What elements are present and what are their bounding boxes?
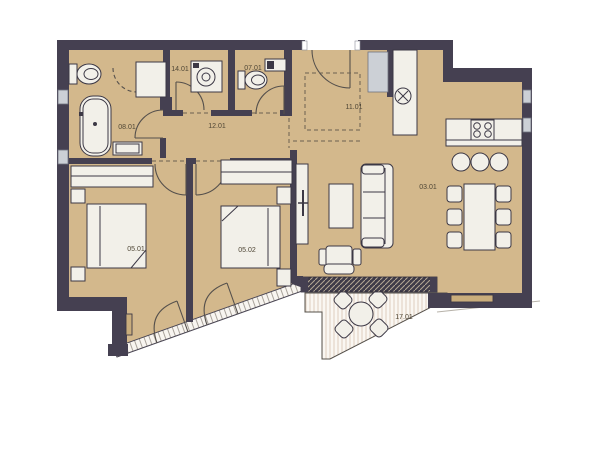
door-frame	[355, 41, 360, 50]
room-label-wc: 07.01	[244, 65, 262, 72]
toilet-icon	[77, 64, 101, 84]
wall	[443, 68, 532, 82]
chair-icon	[496, 186, 511, 202]
bathtub-tap-icon	[79, 112, 83, 116]
dining-furniture	[447, 184, 511, 250]
room-label-hallway: 12.01	[208, 123, 226, 130]
bar-stool-icon	[490, 153, 508, 171]
sink-tap-icon	[267, 61, 274, 69]
chair-icon	[447, 232, 462, 248]
bed-icon	[221, 206, 280, 268]
wall	[358, 40, 453, 50]
wall	[522, 68, 532, 308]
toilet-icon	[245, 71, 267, 89]
terrace-door-sill	[301, 277, 437, 292]
terrace-table-icon	[349, 302, 373, 326]
bar-stool-icon	[452, 153, 470, 171]
wall	[67, 158, 152, 164]
closet-icon	[393, 50, 417, 135]
room-label-bedroom1: 05.01	[127, 246, 145, 253]
entry-sidelight-window	[368, 52, 388, 92]
coffee-table-icon	[329, 184, 353, 228]
wall	[57, 40, 305, 50]
chair-icon	[496, 232, 511, 248]
window	[523, 118, 531, 132]
sofa-armrest-icon	[362, 238, 384, 247]
room-label-living: 03.01	[419, 184, 437, 191]
floor-plan-drawing: 08.01 14.01 07.01 12.01 11.01 03.01 05.0…	[0, 0, 600, 469]
wall	[228, 50, 235, 116]
floor-plan: 08.01 14.01 07.01 12.01 11.01 03.01 05.0…	[0, 0, 600, 469]
room-label-entry: 11.01	[346, 104, 363, 111]
sofa-armrest-icon	[362, 165, 384, 174]
nightstand-icon	[277, 187, 291, 204]
nightstand-icon	[277, 269, 291, 286]
chair-icon	[447, 209, 462, 225]
sill-cap	[430, 277, 437, 292]
bed-icon	[87, 204, 146, 268]
armchair-icon	[353, 249, 361, 265]
bar-stool-icon	[471, 153, 489, 171]
wall	[163, 110, 183, 116]
radiator-icon	[126, 314, 132, 335]
window	[58, 90, 68, 104]
wall	[211, 110, 252, 116]
wall	[186, 158, 196, 164]
washing-machine-icon	[193, 63, 199, 68]
dining-table-icon	[464, 184, 495, 250]
wall	[57, 40, 69, 307]
window	[523, 90, 531, 103]
utility-fixtures	[191, 61, 222, 92]
room-label-utility: 14.01	[171, 66, 189, 73]
wall	[160, 97, 172, 110]
sofa-icon	[361, 164, 393, 248]
radiator-icon	[451, 295, 493, 302]
nightstand-icon	[71, 189, 85, 203]
chair-icon	[496, 209, 511, 225]
room-label-terrace: 17.01	[395, 314, 413, 321]
nightstand-icon	[71, 267, 85, 281]
door-frame	[302, 41, 307, 50]
kitchen-counter-icon	[446, 119, 522, 146]
wall	[186, 164, 193, 322]
bathtub-icon	[80, 96, 111, 156]
window	[58, 150, 68, 164]
bathtub-drain-icon	[93, 122, 97, 126]
chair-icon	[447, 186, 462, 202]
entry-closet	[393, 50, 417, 135]
wall	[108, 344, 128, 356]
wall	[160, 138, 166, 158]
toilet-icon	[238, 71, 245, 89]
wall	[280, 110, 292, 116]
toilet-icon	[69, 64, 77, 84]
shower-icon	[136, 62, 166, 97]
room-label-bedroom2: 05.02	[238, 247, 256, 254]
armchair-icon	[324, 264, 354, 274]
room-label-bathroom: 08.01	[118, 124, 136, 131]
sliding-door-sill	[301, 277, 437, 292]
